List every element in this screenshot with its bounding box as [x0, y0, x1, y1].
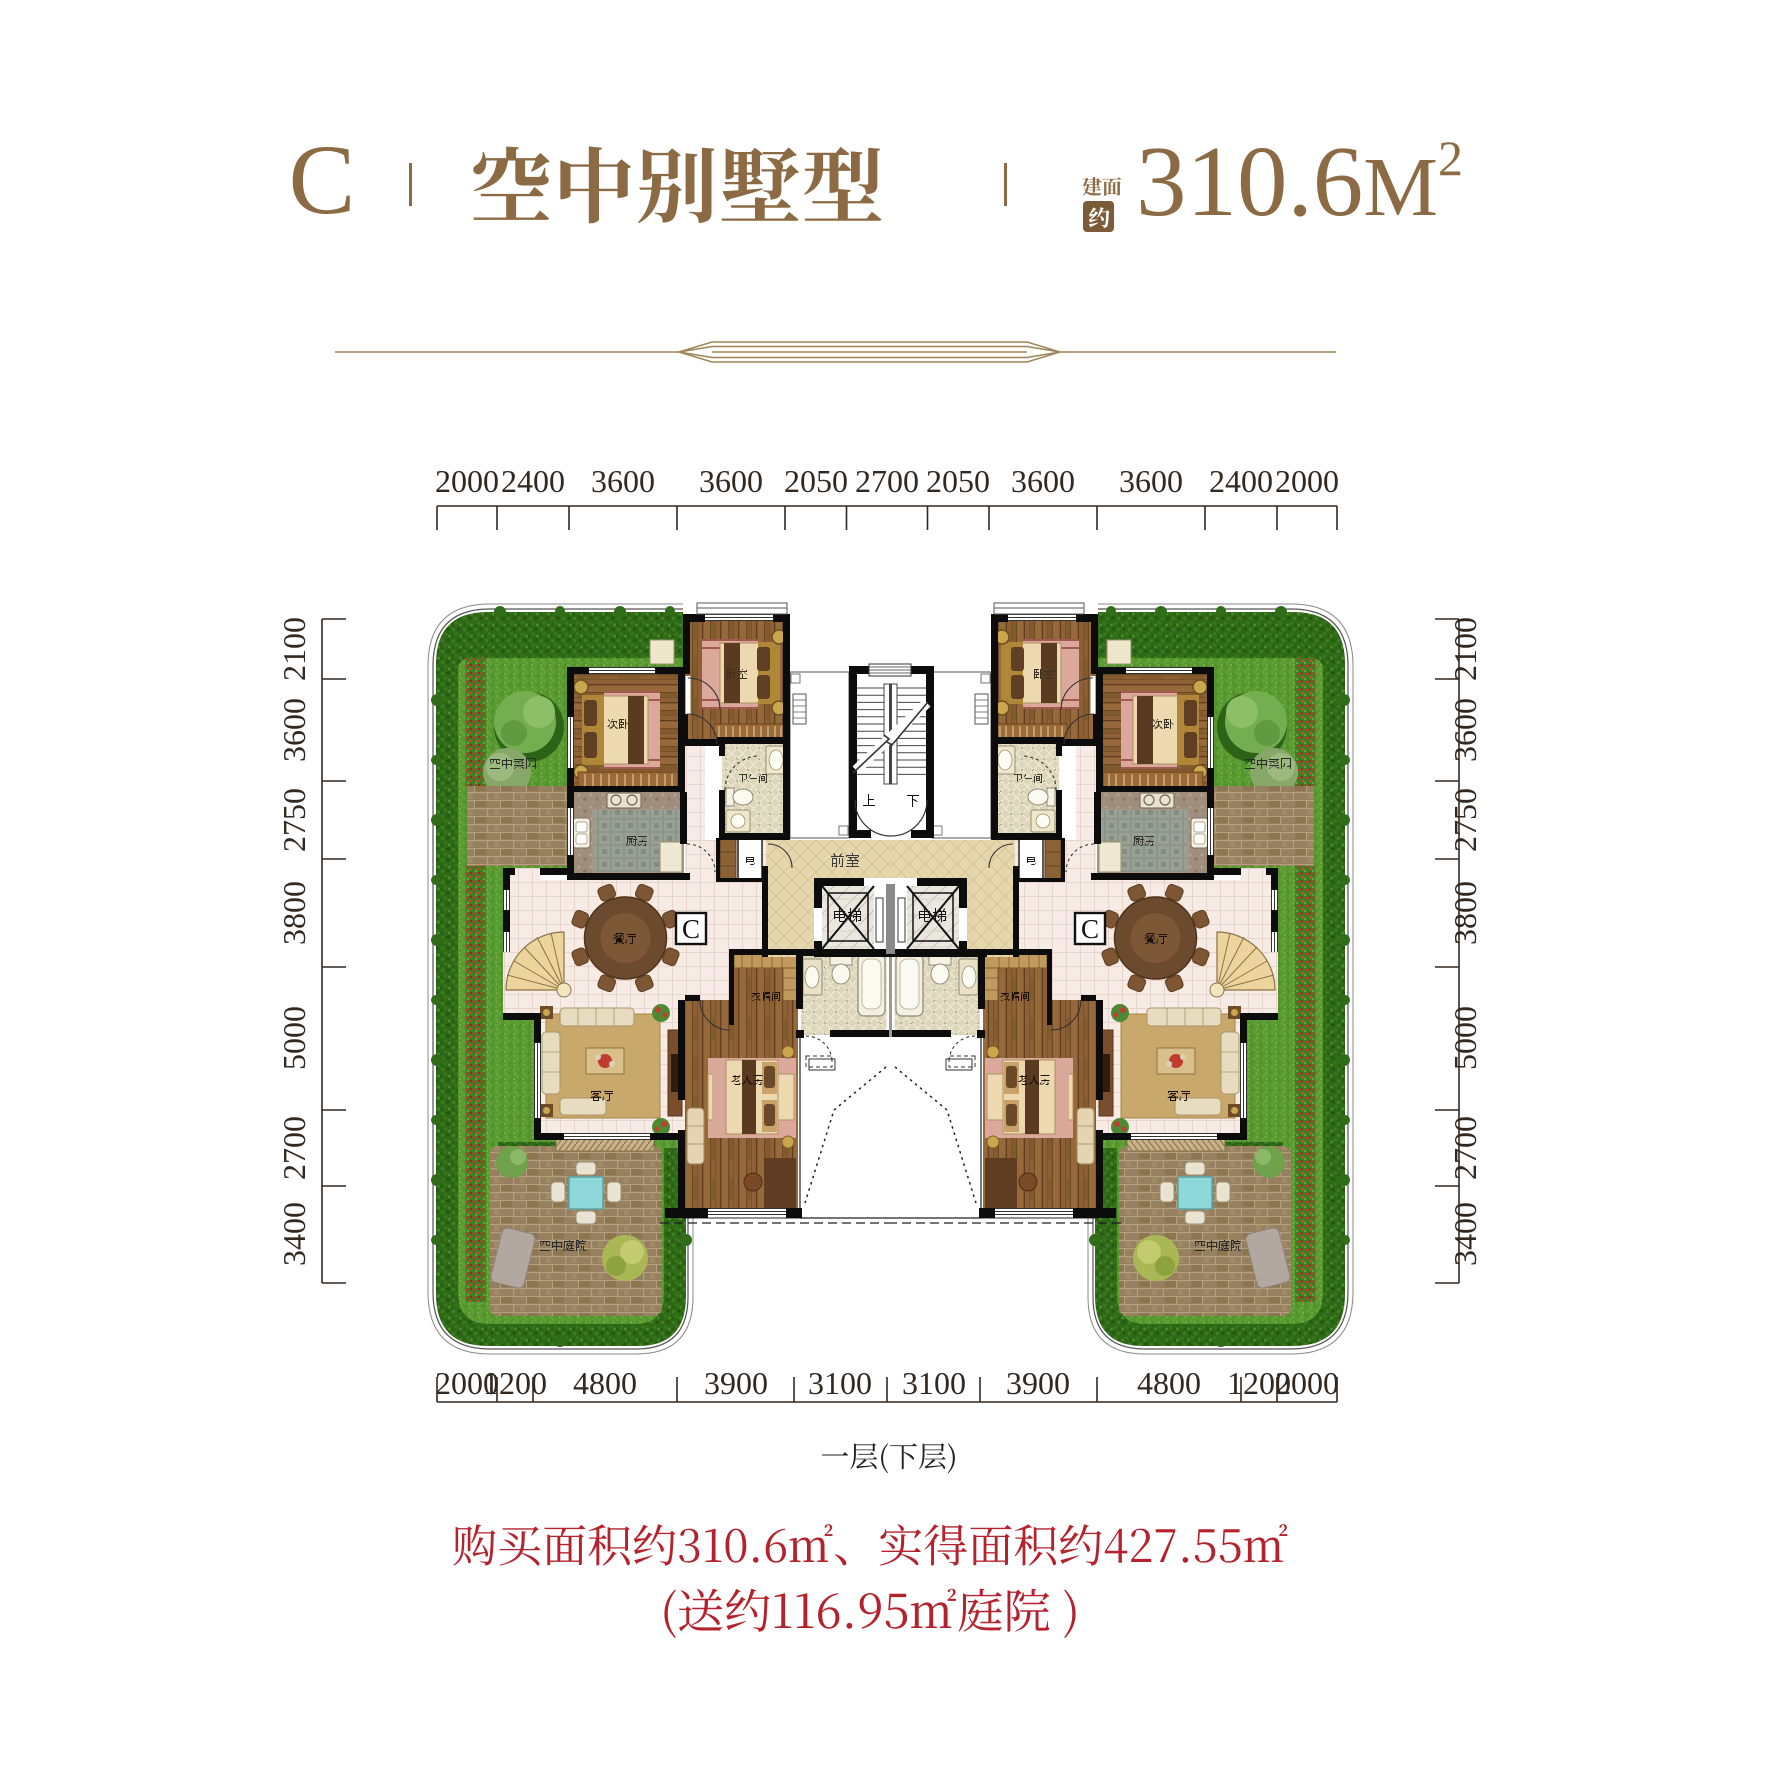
svg-text:310.6M2: 310.6M2 — [1136, 125, 1463, 237]
svg-text:2000: 2000 — [1275, 463, 1339, 499]
svg-text:2050: 2050 — [784, 463, 848, 499]
svg-text:5000: 5000 — [276, 1006, 312, 1070]
svg-text:3600: 3600 — [1011, 463, 1075, 499]
svg-text:3600: 3600 — [699, 463, 763, 499]
svg-text:2400: 2400 — [1209, 463, 1273, 499]
svg-text:2750: 2750 — [1447, 788, 1483, 852]
svg-text:4800: 4800 — [1137, 1365, 1201, 1401]
svg-text:2750: 2750 — [276, 788, 312, 852]
svg-text:3900: 3900 — [1006, 1365, 1070, 1401]
svg-text:2000: 2000 — [435, 463, 499, 499]
svg-text:3100: 3100 — [808, 1365, 872, 1401]
svg-text:1200: 1200 — [483, 1365, 547, 1401]
svg-text:2700: 2700 — [855, 463, 919, 499]
svg-text:3600: 3600 — [1119, 463, 1183, 499]
svg-text:3600: 3600 — [1447, 698, 1483, 762]
svg-text:C: C — [1081, 914, 1099, 944]
svg-text:2100: 2100 — [276, 617, 312, 681]
svg-text:C: C — [682, 914, 700, 944]
svg-text:2400: 2400 — [501, 463, 565, 499]
svg-text:3600: 3600 — [276, 698, 312, 762]
svg-text:3100: 3100 — [902, 1365, 966, 1401]
svg-text:3600: 3600 — [591, 463, 655, 499]
svg-text:3400: 3400 — [1447, 1202, 1483, 1266]
svg-text:2700: 2700 — [1447, 1116, 1483, 1180]
svg-text:3400: 3400 — [276, 1202, 312, 1266]
svg-text:3800: 3800 — [276, 881, 312, 945]
svg-text:4800: 4800 — [573, 1365, 637, 1401]
svg-text:2100: 2100 — [1447, 617, 1483, 681]
svg-text:2700: 2700 — [276, 1116, 312, 1180]
svg-text:C: C — [289, 124, 356, 235]
svg-text:2000: 2000 — [1275, 1365, 1339, 1401]
svg-text:5000: 5000 — [1447, 1006, 1483, 1070]
svg-text:3900: 3900 — [704, 1365, 768, 1401]
svg-text:2050: 2050 — [926, 463, 990, 499]
svg-text:3800: 3800 — [1447, 881, 1483, 945]
